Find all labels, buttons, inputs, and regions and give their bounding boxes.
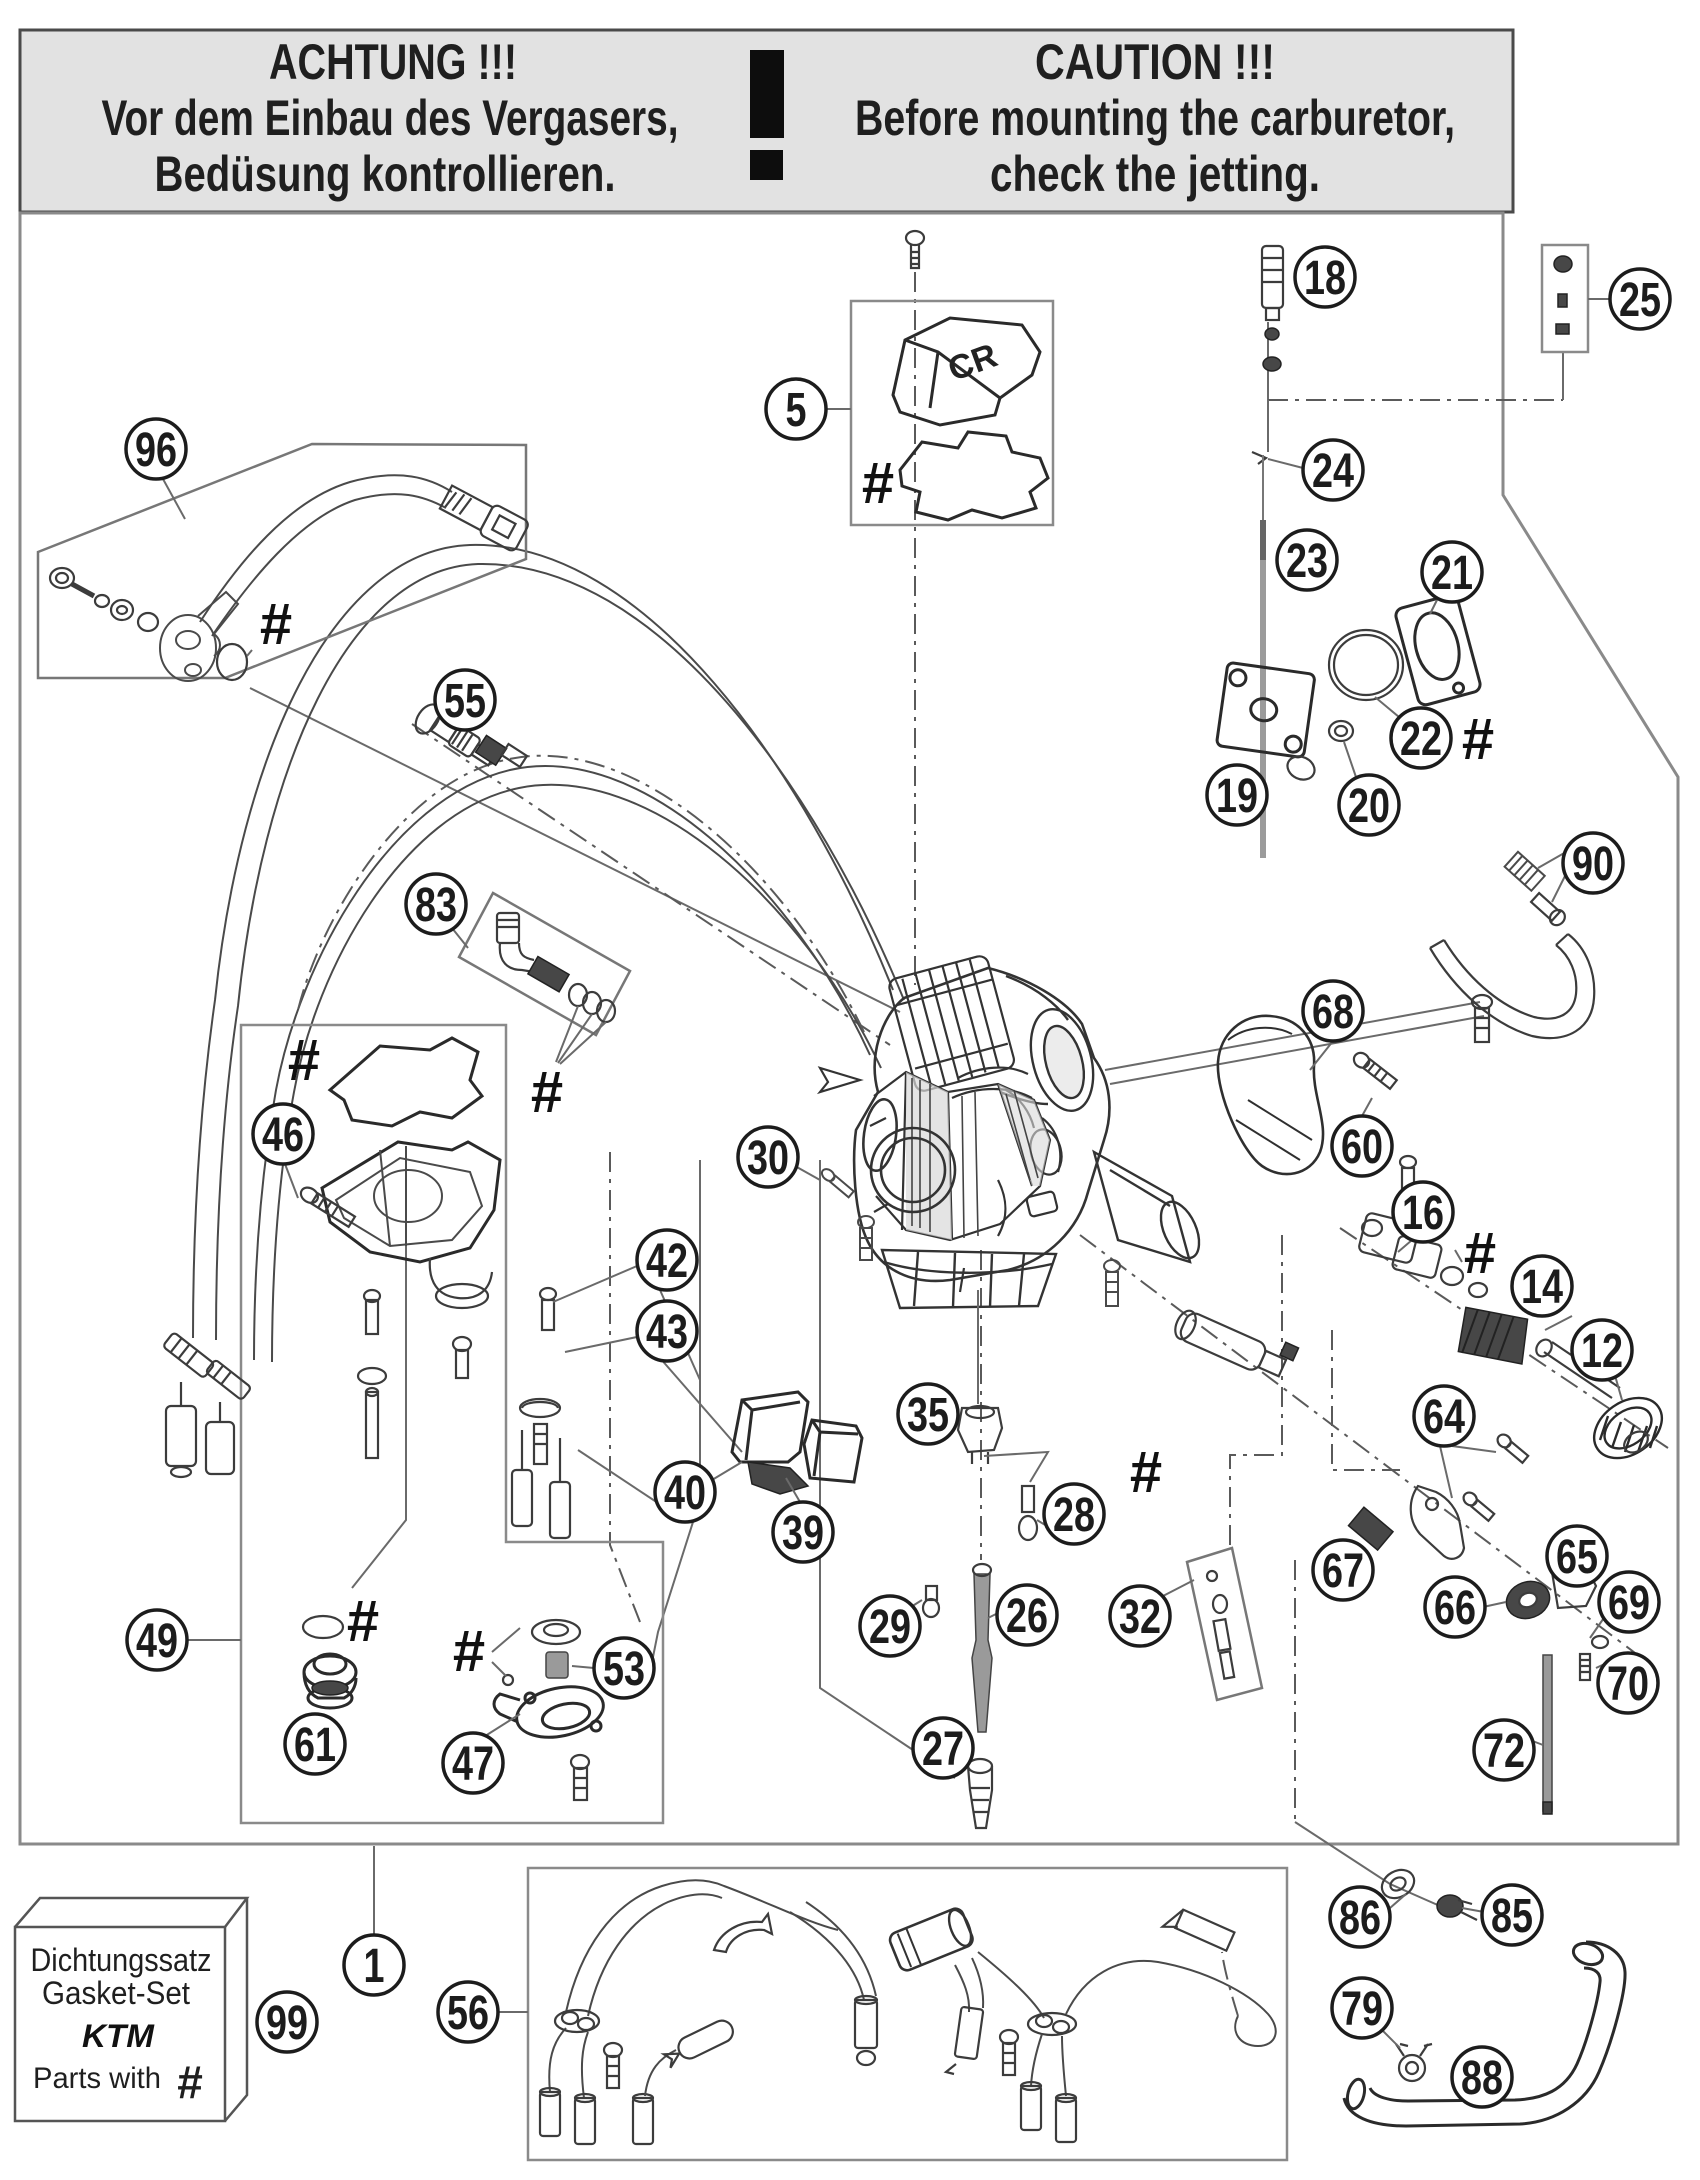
svg-text:72: 72 [1483,1725,1525,1778]
svg-text:47: 47 [452,1738,494,1791]
svg-text:42: 42 [646,1235,688,1288]
svg-text:Dichtungssatz: Dichtungssatz [31,1942,212,1978]
svg-text:68: 68 [1312,986,1354,1039]
svg-text:60: 60 [1341,1121,1383,1174]
svg-text:#: # [260,592,292,657]
svg-text:24: 24 [1312,445,1354,498]
svg-text:30: 30 [747,1132,789,1185]
svg-text:65: 65 [1556,1531,1598,1584]
svg-text:69: 69 [1608,1577,1650,1630]
svg-text:27: 27 [922,1723,964,1776]
svg-text:35: 35 [907,1389,949,1442]
svg-text:43: 43 [646,1306,688,1359]
svg-text:55: 55 [444,675,486,728]
svg-text:22: 22 [1400,713,1442,766]
svg-text:96: 96 [135,424,177,477]
svg-text:85: 85 [1491,1890,1533,1943]
svg-text:16: 16 [1402,1187,1444,1240]
svg-text:23: 23 [1286,535,1328,588]
svg-text:19: 19 [1216,770,1258,823]
svg-text:ACHTUNG !!!: ACHTUNG !!! [269,34,517,90]
svg-text:49: 49 [136,1615,178,1668]
svg-text:#: # [288,1028,320,1093]
svg-text:29: 29 [869,1601,911,1654]
svg-text:21: 21 [1431,547,1473,600]
svg-text:CAUTION !!!: CAUTION !!! [1035,34,1275,90]
svg-text:64: 64 [1423,1391,1465,1444]
svg-text:#: # [531,1060,563,1125]
svg-text:#: # [453,1619,485,1684]
svg-text:Gasket-Set: Gasket-Set [42,1975,190,2011]
svg-text:28: 28 [1053,1489,1095,1542]
svg-text:67: 67 [1322,1545,1364,1598]
svg-text:99: 99 [266,1997,308,2050]
svg-text:86: 86 [1339,1892,1381,1945]
svg-text:90: 90 [1572,838,1614,891]
svg-text:70: 70 [1607,1658,1649,1711]
svg-text:#: # [347,1589,379,1654]
svg-text:check the jetting.: check the jetting. [990,146,1320,202]
svg-text:88: 88 [1461,2052,1503,2105]
svg-text:66: 66 [1434,1582,1476,1635]
svg-text:46: 46 [262,1109,304,1162]
svg-text:Vor dem Einbau des Vergasers,: Vor dem Einbau des Vergasers, [102,90,679,146]
svg-text:61: 61 [294,1719,336,1772]
svg-text:5: 5 [786,384,807,437]
svg-text:1: 1 [364,1940,385,1993]
svg-text:18: 18 [1304,252,1346,305]
svg-text:56: 56 [447,1987,489,2040]
svg-text:40: 40 [664,1467,706,1520]
svg-text:26: 26 [1006,1590,1048,1643]
svg-text:12: 12 [1581,1325,1623,1378]
svg-text:32: 32 [1119,1591,1161,1644]
svg-text:#: # [1462,707,1494,772]
svg-text:14: 14 [1521,1261,1563,1314]
svg-text:Bedüsung kontrollieren.: Bedüsung kontrollieren. [155,146,616,202]
svg-text:Parts with: Parts with [33,2062,161,2095]
svg-text:53: 53 [603,1643,645,1696]
svg-text:#: # [862,451,894,516]
svg-text:79: 79 [1341,1983,1383,2036]
svg-text:Before mounting the carburetor: Before mounting the carburetor, [855,90,1455,146]
svg-text:#: # [177,2056,203,2108]
svg-text:#: # [1130,1440,1162,1505]
svg-text:20: 20 [1348,780,1390,833]
svg-text:KTM: KTM [82,2018,155,2054]
svg-text:#: # [1464,1221,1496,1286]
svg-text:25: 25 [1619,274,1661,327]
svg-text:83: 83 [415,879,457,932]
svg-text:39: 39 [782,1507,824,1560]
